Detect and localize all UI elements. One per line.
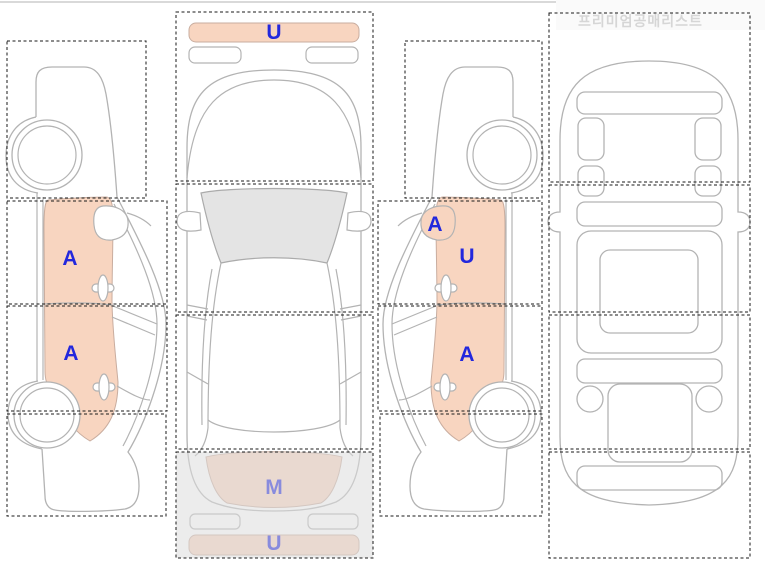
rear-zone-overlay [176,452,373,558]
right-front-door-code: U [459,245,474,268]
zone-bottom-mid-rear[interactable] [549,315,750,449]
mid-crossmember [577,202,722,226]
hood-seam [187,80,361,178]
floor-pan [577,231,722,353]
rear-bumper-beam [577,466,722,490]
watermark-text: 프리미엄공매리스트 [578,13,703,29]
left-rear-mount [577,386,603,412]
left-top-mirror-icon[interactable] [177,211,201,231]
left-cabin-lines [202,263,221,428]
left-front-rail [578,118,604,160]
right-rail-block [695,166,721,196]
rear-window-curve [208,420,340,432]
right-top-mirror-icon[interactable] [347,211,371,231]
top-body-outline [187,70,361,511]
fuel-tank [608,384,692,462]
left-mirror-icon[interactable] [94,206,128,240]
vehicle-damage-diagram: 프리미엄공매리스트 A A A U A U M [0,0,765,564]
right-rear-door-code: A [459,343,474,366]
right-rear-mount [696,386,722,412]
right-front-rail [695,118,721,160]
underbody-view [548,61,750,505]
top-view: U M U [176,21,373,558]
front-crossmember [577,92,722,114]
left-headlight[interactable] [189,47,241,63]
right-side-view: A U A [383,67,543,511]
rear-crossmember [577,359,722,383]
right-cabin-lines [327,263,346,428]
top-front-bumper-code: U [266,21,281,44]
left-rail-block [578,166,604,196]
windshield-glass[interactable] [201,189,347,264]
right-headlight[interactable] [306,47,358,63]
left-front-door-code: A [62,247,77,270]
left-side-view: A A [6,67,166,511]
left-rear-door-code: A [63,342,78,365]
right-mirror-code: A [427,213,442,236]
floor-pan-inner [600,250,698,333]
